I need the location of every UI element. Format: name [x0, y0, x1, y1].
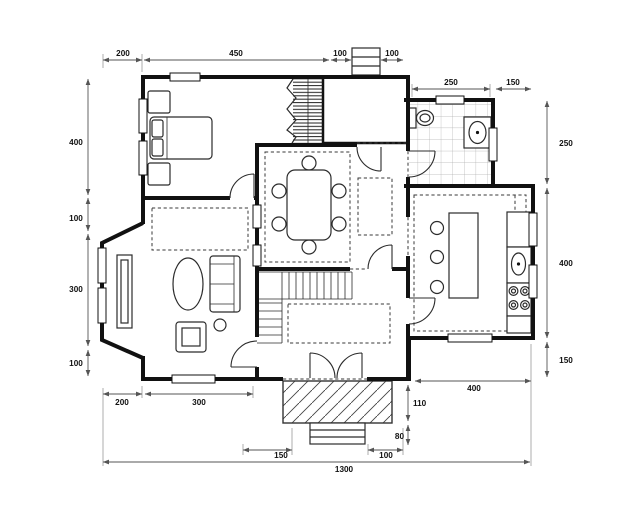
counter	[507, 316, 531, 333]
dim-left-100b: 100	[69, 359, 83, 368]
sideboard	[117, 255, 132, 328]
dim-top-100a: 100	[333, 49, 347, 58]
armchair	[176, 322, 206, 352]
dim-left-100a: 100	[69, 214, 83, 223]
toilet	[417, 111, 434, 126]
dim-ur-250: 250	[444, 78, 458, 87]
pillow	[152, 120, 163, 137]
kitchen-bottom-window	[448, 334, 492, 342]
bay-window	[98, 288, 106, 323]
dining-chair	[332, 184, 346, 198]
porch-steps	[310, 423, 365, 444]
chimney	[352, 48, 380, 75]
dim-left-300: 300	[69, 285, 83, 294]
nightstand	[148, 91, 170, 113]
dining-chair	[272, 217, 286, 231]
side-table	[214, 319, 226, 331]
dim-right-250: 250	[559, 139, 573, 148]
dim-top-200: 200	[116, 49, 130, 58]
dim-porch-100: 100	[379, 451, 393, 460]
dim-right-150: 150	[559, 356, 573, 365]
dim-total-1300: 1300	[335, 465, 354, 474]
dining-chair	[302, 240, 316, 254]
bedroom-top-window	[170, 73, 200, 81]
dim-top-100b: 100	[385, 49, 399, 58]
dim-right-400: 400	[559, 259, 573, 268]
kitchen-right-window	[529, 265, 537, 298]
counter	[507, 212, 531, 247]
stool	[431, 281, 444, 294]
stool	[431, 251, 444, 264]
dim-bl-200: 200	[115, 398, 129, 407]
dim-porch-110: 110	[413, 399, 427, 408]
stool	[431, 222, 444, 235]
dim-bl-300: 300	[192, 398, 206, 407]
toilet-tank	[409, 108, 416, 128]
pillow	[152, 139, 163, 156]
floor-plan-svg: 200 450 100 100 250 150 250 400 150 400 …	[0, 0, 630, 520]
dim-porch-150: 150	[274, 451, 288, 460]
dim-top-450: 450	[229, 49, 243, 58]
bay-window	[98, 248, 106, 283]
dining-chair	[272, 184, 286, 198]
kitchen-island	[449, 213, 478, 298]
bedroom-left-window	[139, 99, 147, 133]
bathroom-right-window	[489, 128, 497, 161]
dim-left-400: 400	[69, 138, 83, 147]
living-room-window	[172, 375, 215, 383]
dining-table	[287, 170, 331, 240]
floor-plan-canvas: 200 450 100 100 250 150 250 400 150 400 …	[0, 0, 630, 520]
dining-chair	[302, 156, 316, 170]
kitchen-right-window	[529, 213, 537, 246]
dim-ur-150: 150	[506, 78, 520, 87]
coffee-table	[173, 258, 203, 310]
bathroom-top-window	[436, 96, 464, 104]
cased-opening	[253, 245, 261, 266]
dim-br-400: 400	[467, 384, 481, 393]
cased-opening	[253, 205, 261, 228]
nightstand	[148, 163, 170, 185]
dining-chair	[332, 217, 346, 231]
bedroom-left-window	[139, 141, 147, 175]
dim-porch-80: 80	[395, 432, 405, 441]
